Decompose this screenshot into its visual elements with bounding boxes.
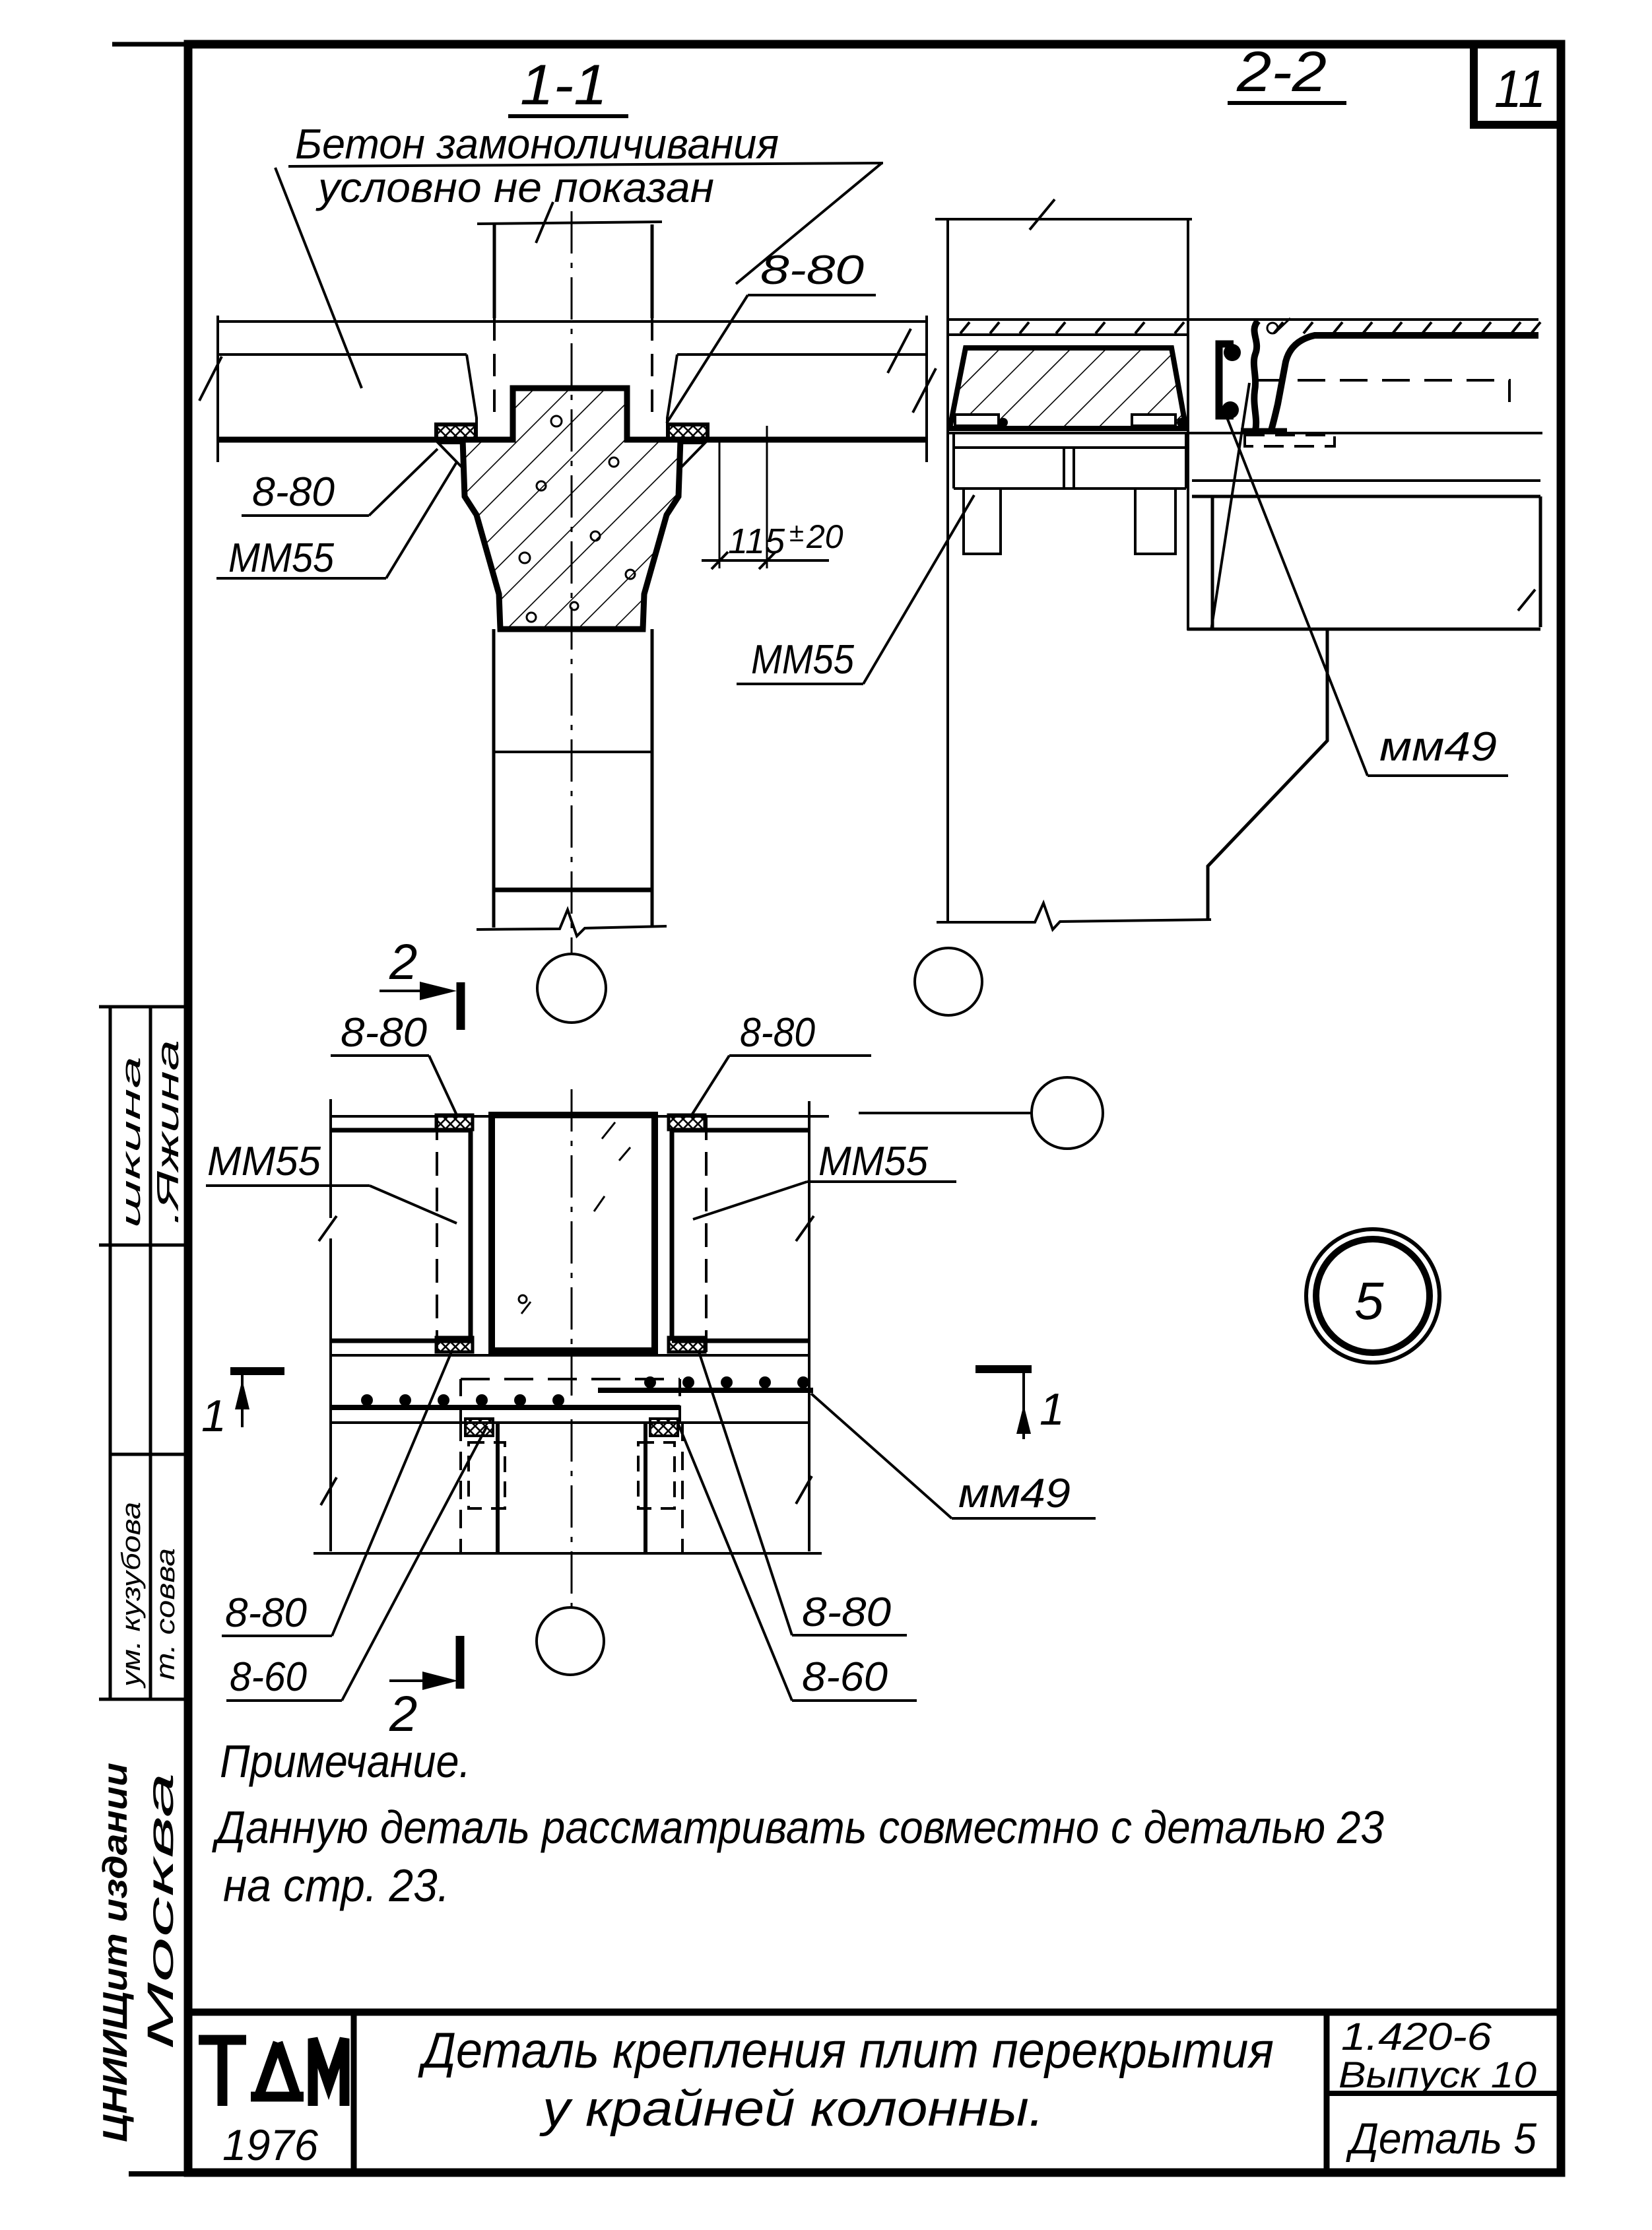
svg-text:2: 2 (389, 934, 417, 990)
svg-text:ЦНИИЩит издании: ЦНИИЩит издании (96, 1763, 135, 2142)
svg-text:Деталь крепления плит перекрыт: Деталь крепления плит перекрытия (417, 2023, 1274, 2079)
svg-text:ММ55: ММ55 (228, 535, 334, 581)
svg-text:Выпуск 10: Выпуск 10 (1338, 2054, 1536, 2095)
svg-text:2: 2 (389, 1686, 417, 1742)
svg-text:8-80: 8-80 (802, 1590, 891, 1635)
svg-text:ММ55: ММ55 (818, 1139, 928, 1184)
svg-text:1: 1 (201, 1391, 226, 1441)
svg-text:Данную деталь рассматривать со: Данную деталь рассматривать совместно с … (212, 1802, 1384, 1853)
svg-text:т. совва: т. совва (151, 1548, 180, 1680)
svg-text:Примечание.: Примечание. (220, 1736, 471, 1787)
svg-text:1.420-6: 1.420-6 (1341, 2015, 1492, 2058)
svg-text:±: ± (789, 518, 804, 547)
svg-text:Деталь 5: Деталь 5 (1345, 2114, 1536, 2163)
svg-text:8-80: 8-80 (252, 469, 335, 515)
svg-text:ММ55: ММ55 (207, 1139, 321, 1184)
svg-text:.Яжина: .Яжина (150, 1040, 185, 1225)
svg-text:Бетон замоноличивания: Бетон замоноличивания (295, 120, 779, 168)
svg-text:1976: 1976 (222, 2120, 318, 2169)
svg-text:у крайней колонны.: у крайней колонны. (539, 2081, 1044, 2137)
svg-text:8-80: 8-80 (760, 248, 864, 293)
svg-text:8-60: 8-60 (230, 1654, 307, 1700)
svg-text:20: 20 (806, 518, 843, 555)
svg-text:5: 5 (1354, 1271, 1384, 1330)
svg-text:ум. кузубова: ум. кузубова (117, 1502, 146, 1689)
svg-text:шкина: шкина (117, 1056, 146, 1228)
svg-text:8-80: 8-80 (341, 1010, 427, 1056)
svg-text:2-2: 2-2 (1236, 40, 1327, 104)
svg-text:ММ55: ММ55 (751, 637, 854, 683)
svg-text:мм49: мм49 (958, 1471, 1071, 1516)
svg-text:1: 1 (1040, 1384, 1065, 1435)
svg-text:на стр. 23.: на стр. 23. (223, 1860, 449, 1911)
svg-text:8-80: 8-80 (225, 1590, 307, 1636)
svg-text:Москва: Москва (139, 1773, 181, 2050)
svg-text:115: 115 (728, 522, 785, 561)
svg-text:8-60: 8-60 (802, 1654, 888, 1700)
svg-text:мм49: мм49 (1379, 724, 1497, 770)
svg-text:11: 11 (1494, 59, 1546, 118)
svg-text:8-80: 8-80 (740, 1010, 815, 1056)
svg-text:условно не показан: условно не показан (315, 164, 714, 211)
svg-text:1-1: 1-1 (520, 53, 607, 117)
